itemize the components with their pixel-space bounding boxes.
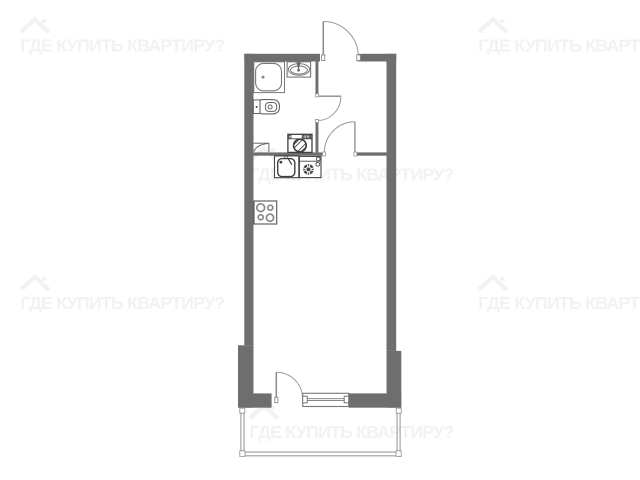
svg-text:ГДЕ КУПИТЬ КВАРТИРУ?: ГДЕ КУПИТЬ КВАРТИРУ?	[249, 422, 453, 442]
svg-text:ГДЕ КУПИТЬ КВАРТИРУ?: ГДЕ КУПИТЬ КВАРТИРУ?	[20, 293, 224, 313]
svg-text:ГДЕ КУПИТЬ КВАРТИРУ?: ГДЕ КУПИТЬ КВАРТИРУ?	[20, 36, 224, 56]
svg-text:ГДЕ КУПИТЬ КВАРТИРУ?: ГДЕ КУПИТЬ КВАРТИРУ?	[478, 36, 640, 56]
svg-text:ГДЕ КУПИТЬ КВАРТИРУ?: ГДЕ КУПИТЬ КВАРТИРУ?	[478, 293, 640, 313]
